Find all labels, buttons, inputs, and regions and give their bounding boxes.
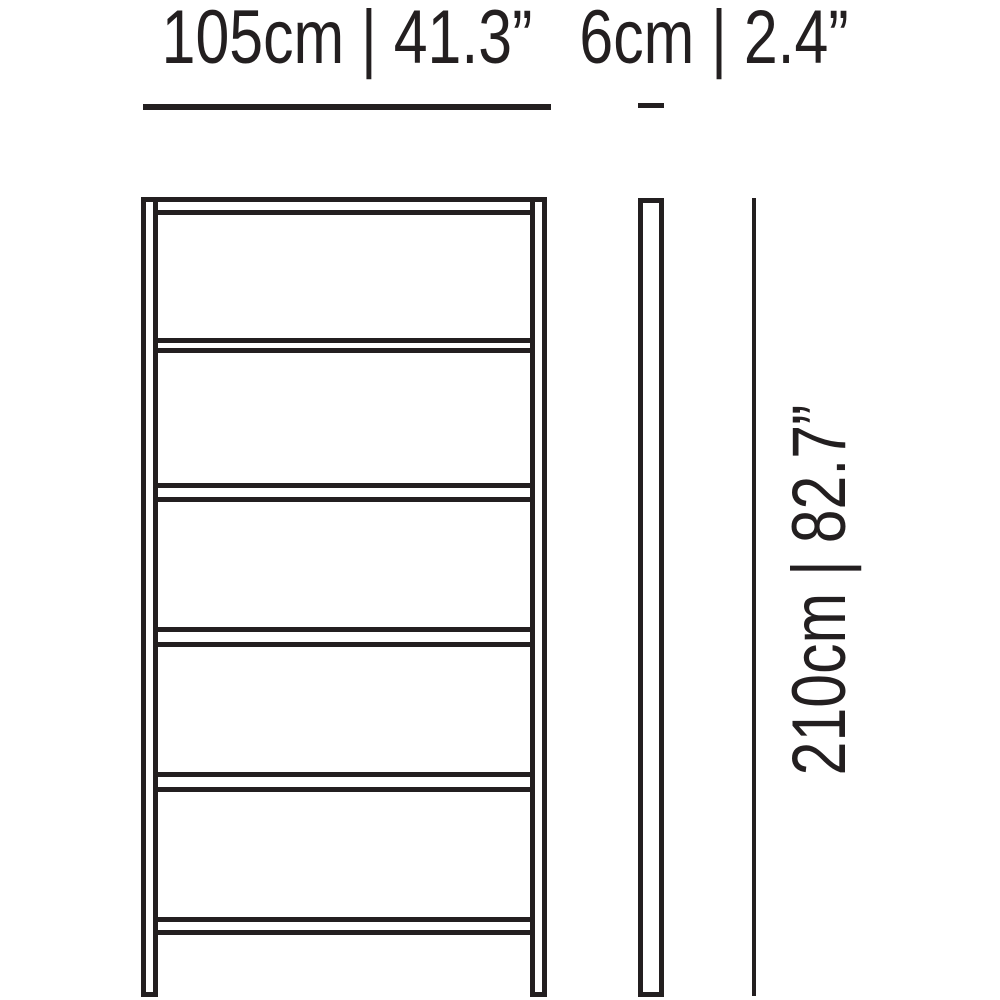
front-bottom-rail: [153, 930, 535, 935]
shelf-compartment-3: [153, 497, 535, 632]
shelf-compartment-5: [153, 787, 535, 922]
front-top-rail: [141, 197, 547, 202]
side-view: [638, 198, 664, 997]
front-view: [141, 197, 547, 997]
shelf-compartment-4: [153, 642, 535, 777]
height-dimension-line: [752, 198, 756, 996]
depth-dimension-line: [638, 103, 664, 108]
shelf-compartment-2: [153, 348, 535, 488]
width-dimension-line: [143, 104, 551, 110]
shelf-compartment-1: [153, 210, 535, 343]
depth-dimension-label: 6cm | 2.4”: [579, 2, 848, 74]
width-dimension-label: 105cm | 41.3”: [162, 2, 533, 74]
dimension-diagram: 105cm | 41.3” 6cm | 2.4” 210cm | 82.7”: [0, 0, 1000, 1000]
height-dimension-label: 210cm | 82.7”: [784, 405, 856, 776]
